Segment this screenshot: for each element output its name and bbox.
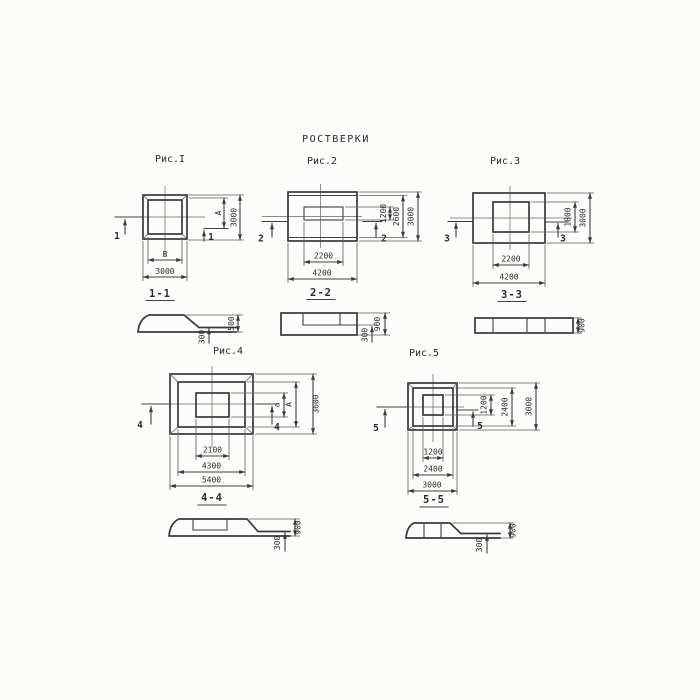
fig4-section-extensions: [249, 519, 300, 536]
fig5-cut-number-right: 5: [477, 421, 483, 432]
fig4-inner-width-label: 2100: [203, 446, 222, 455]
fig4-mid-height-label: А: [285, 402, 294, 407]
fig4-inner-rect: [196, 393, 229, 417]
fig3-section-total-label: 900: [578, 318, 587, 333]
figure-5: Рис.5 1200 2400 3000 1200 2400 3000 5 5: [373, 348, 540, 553]
fig1-centerlines: [121, 186, 205, 256]
fig4-caption: Рис.4: [213, 346, 243, 357]
fig2-outer-width-label: 4200: [312, 269, 331, 278]
fig3-outer-height-label: 3000: [579, 208, 588, 227]
fig3-inner-width-label: 2200: [501, 255, 520, 264]
fig5-inner-width-label: 1200: [423, 448, 442, 457]
fig2-cut-number-right: 2: [381, 234, 387, 245]
fig4-centerlines: [152, 366, 258, 448]
fig2-outer-height-label: 3000: [407, 207, 416, 226]
figure-4: Рис.4 а А 3600 2100 4300 5400 4 4: [137, 346, 320, 551]
fig2-mid-height-label: 2600: [392, 207, 401, 226]
fig5-outer-square: [408, 383, 457, 430]
fig3-extension-lines: [473, 193, 594, 287]
fig3-centerlines: [450, 186, 572, 250]
fig1-cut-flag-lines: [115, 217, 228, 229]
fig5-caption: Рис.5: [409, 348, 439, 359]
fig2-section-title: 2-2: [310, 287, 332, 299]
fig5-outer-width-label: 3000: [422, 481, 441, 490]
fig2-section-profile: [281, 313, 357, 335]
fig5-mid-width-label: 2400: [423, 465, 442, 474]
fig4-outer-height-label: 3600: [312, 394, 321, 413]
fig2-section-recess: [303, 313, 357, 325]
fig3-plan-view: 1800 3000 2200 4200 3 3: [444, 186, 594, 287]
fig5-section-edge-label: 300: [475, 538, 484, 553]
fig1-plan-view: А 3000 В 3000 1 1: [114, 186, 244, 281]
fig3-section-title: 3-3: [501, 289, 523, 301]
fig1-inner-height-label: А: [214, 210, 223, 215]
fig4-section-recess: [193, 519, 227, 530]
fig4-middle-rect: [178, 382, 245, 427]
fig4-section-total-label: 900: [294, 520, 303, 535]
fig4-section-profile: [169, 519, 290, 536]
fig2-plan-view: 1200 2600 3000 2200 4200 2 2: [258, 184, 422, 283]
fig5-cut-number-left: 5: [373, 423, 379, 434]
fig5-cut-flag-lines: [377, 407, 478, 410]
fig5-section-profile: [406, 523, 500, 538]
fig3-outer-width-label: 4200: [499, 273, 518, 282]
fig1-section-total-label: 500: [227, 316, 236, 331]
fig2-inner-rect: [304, 207, 343, 220]
fig5-section-extensions: [452, 523, 514, 538]
fig4-outer-width-label: 5400: [202, 476, 221, 485]
fig5-section-view: 5-5 900 300: [406, 494, 518, 553]
fig4-section-title: 4-4: [201, 492, 223, 504]
fig3-caption: Рис.3: [490, 156, 520, 167]
fig4-plan-view: а А 3600 2100 4300 5400 4 4: [137, 366, 320, 490]
fig1-outer-width-label: 3000: [155, 267, 174, 276]
fig3-inner-rect: [493, 202, 529, 232]
fig3-cut-flag-lines: [448, 222, 568, 223]
fig3-inner-height-label: 1800: [564, 207, 573, 226]
fig1-section-title: 1-1: [149, 288, 171, 300]
fig3-cut-number-right: 3: [560, 234, 566, 245]
fig1-section-edge-label: 300: [198, 330, 207, 345]
figure-1: Рис.I А 3000 В 3000 1 1 1-1: [114, 154, 244, 344]
fig1-outer-height-label: 3000: [230, 208, 239, 227]
fig2-section-edge-label: 300: [361, 328, 370, 343]
fig2-centerlines: [262, 184, 362, 248]
fig4-inner-height-label: а: [273, 402, 282, 407]
fig5-plan-view: 1200 2400 3000 1200 2400 3000 5 5: [373, 374, 540, 495]
fig5-inner-height-label: 1200: [480, 395, 489, 414]
fig3-section-dividers: [493, 318, 545, 333]
fig4-extension-lines: [170, 374, 317, 490]
fig5-section-total-label: 900: [509, 523, 518, 538]
fig1-caption: Рис.I: [155, 154, 185, 165]
fig5-section-dividers: [424, 523, 441, 538]
fig2-inner-width-label: 2200: [314, 252, 333, 261]
fig2-caption: Рис.2: [307, 156, 337, 167]
fig3-cut-number-left: 3: [444, 234, 450, 245]
fig3-section-profile: [475, 318, 573, 333]
fig2-section-view: 2-2 900 300: [281, 287, 390, 342]
fig4-cut-number-left: 4: [137, 420, 143, 431]
fig2-cut-number-left: 2: [258, 234, 264, 245]
fig4-section-view: 4-4 900 300: [169, 492, 303, 551]
fig1-section-view: 1-1 500 300: [138, 288, 243, 344]
pile-cap-drawing: РОСТВЕРКИ Рис.I А 3000 В 3000 1 1 1-1: [0, 0, 700, 700]
fig4-mid-width-label: 4300: [202, 462, 221, 471]
fig1-inner-width-label: В: [163, 250, 168, 259]
sheet-title: РОСТВЕРКИ: [302, 134, 370, 145]
figure-2: Рис.2 1200 2600 3000 2200 4200 2 2 2-2: [258, 156, 422, 342]
fig1-cut-number-right: 1: [208, 232, 214, 243]
fig1-cut-number-left: 1: [114, 231, 120, 242]
drawing-sheet: РОСТВЕРКИ Рис.I А 3000 В 3000 1 1 1-1: [0, 0, 700, 700]
figure-3: Рис.3 1800 3000 2200 4200 3 3 3-3: [444, 156, 594, 333]
fig2-section-total-label: 900: [373, 317, 382, 332]
fig5-outer-height-label: 3000: [525, 397, 534, 416]
fig3-section-view: 3-3 900: [475, 289, 587, 333]
fig2-inner-height-label: 1200: [379, 204, 388, 223]
fig5-section-title: 5-5: [423, 494, 445, 506]
fig1-section-profile: [138, 315, 236, 332]
fig5-corner-chamfers: [408, 383, 457, 430]
fig4-section-edge-label: 300: [273, 536, 282, 551]
fig4-cut-number-right: 4: [274, 422, 280, 433]
fig5-extension-lines: [408, 383, 540, 495]
fig5-mid-height-label: 2400: [501, 397, 510, 416]
